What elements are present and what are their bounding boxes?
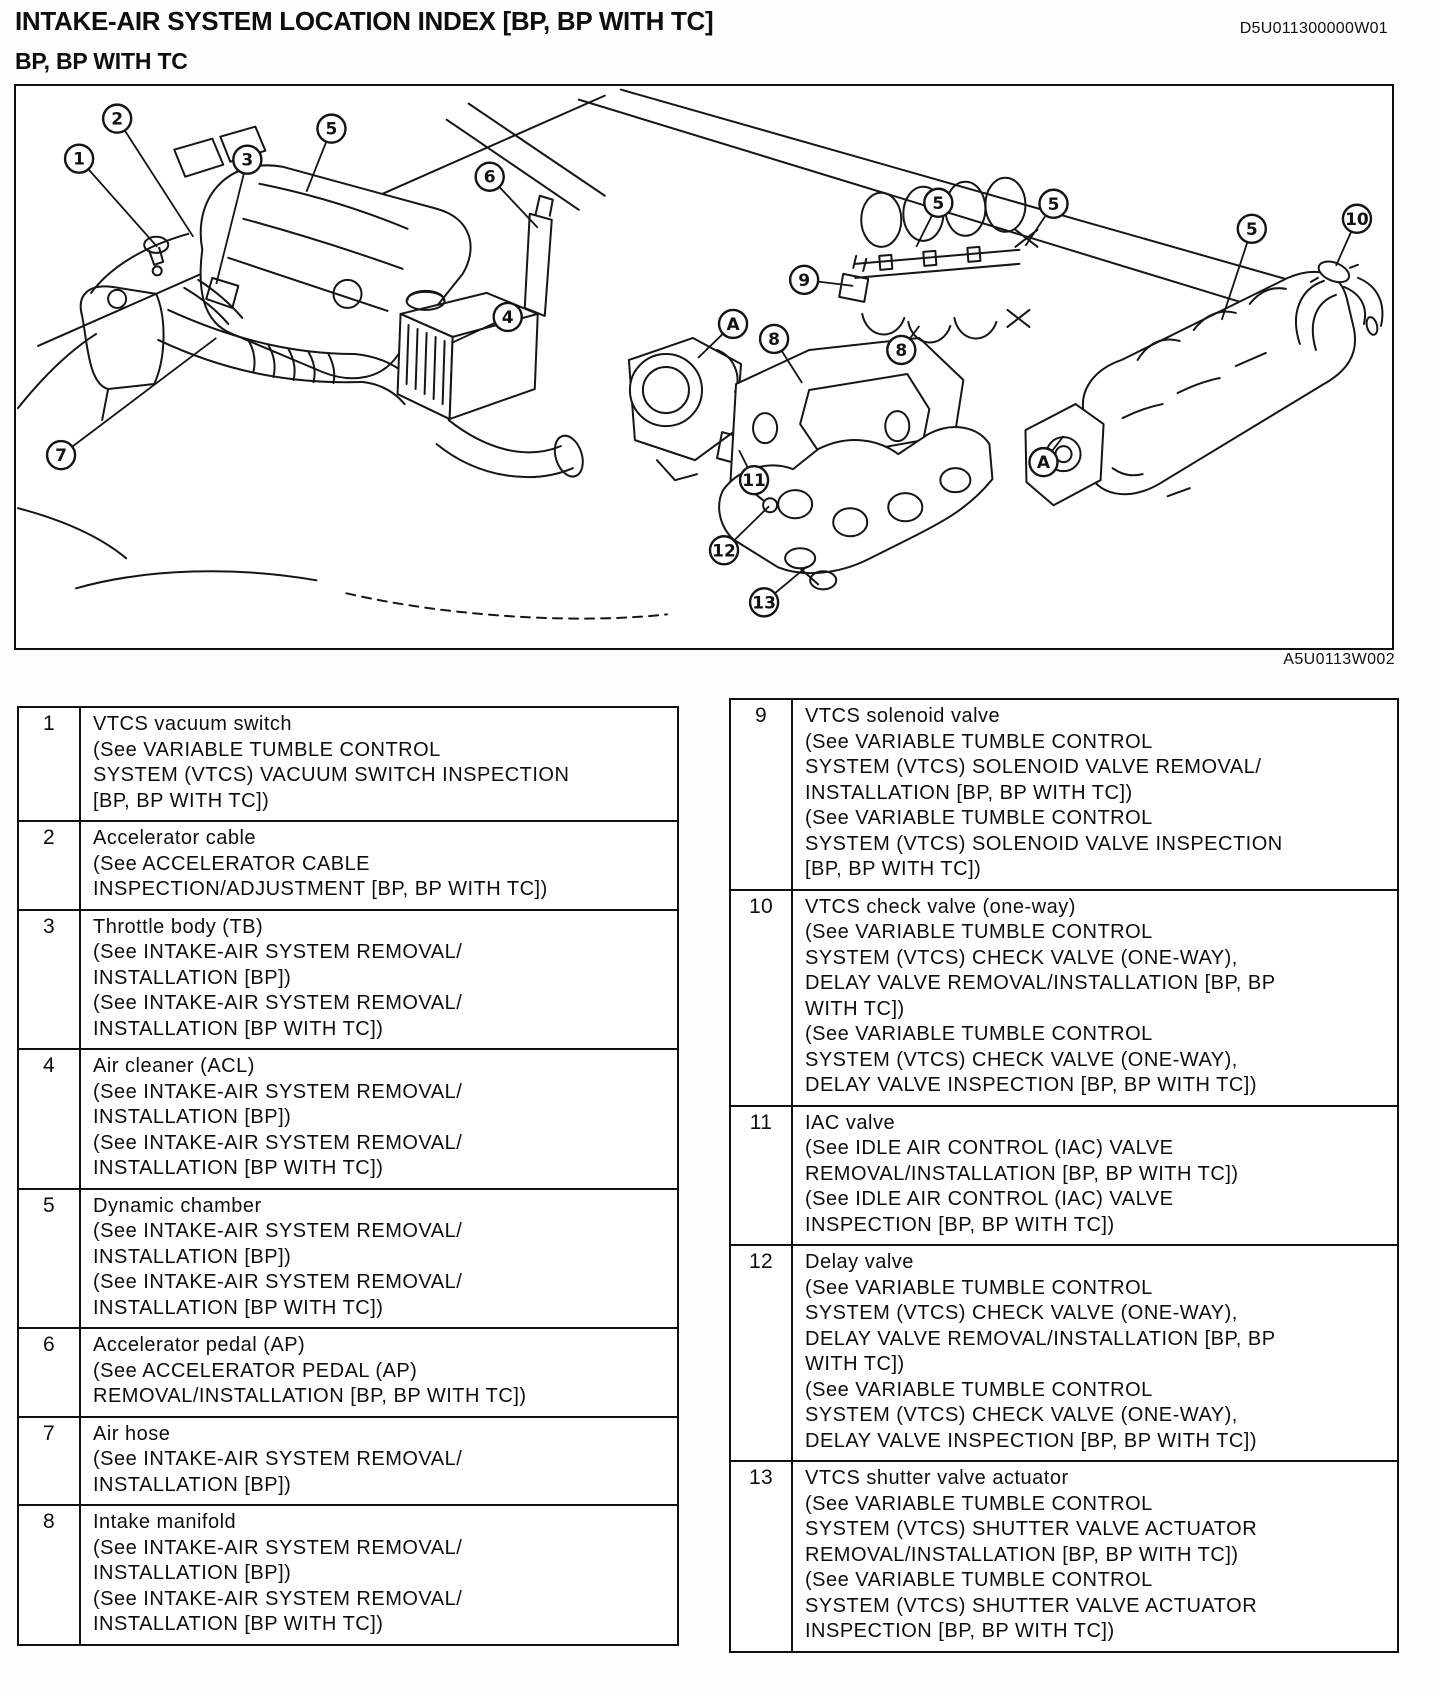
table-row-item-9: 9VTCS solenoid valve(See VARIABLE TUMBLE… [731, 700, 1397, 889]
item-number: 4 [19, 1050, 81, 1188]
svg-text:3: 3 [241, 151, 253, 171]
svg-text:A: A [1037, 453, 1051, 473]
table-row-item-1: 1VTCS vacuum switch(See VARIABLE TUMBLE … [19, 708, 677, 820]
svg-text:4: 4 [502, 308, 514, 328]
table-row-item-7: 7Air hose(See INTAKE-AIR SYSTEM REMOVAL/… [19, 1416, 677, 1505]
table-row-item-11: 11IAC valve(See IDLE AIR CONTROL (IAC) V… [731, 1105, 1397, 1245]
svg-text:7: 7 [55, 446, 67, 466]
item-number: 7 [19, 1418, 81, 1505]
item-description: VTCS solenoid valve(See VARIABLE TUMBLE … [793, 700, 1397, 889]
callout-6: 6 [476, 163, 538, 228]
table-row-item-5: 5Dynamic chamber(See INTAKE-AIR SYSTEM R… [19, 1188, 677, 1328]
doc-code: D5U011300000W01 [1148, 20, 1388, 38]
callout-A1: A [698, 310, 747, 358]
svg-text:5: 5 [1246, 220, 1258, 240]
svg-text:2: 2 [111, 110, 123, 130]
page-title: INTAKE-AIR SYSTEM LOCATION INDEX [BP, BP… [15, 6, 713, 37]
table-row-item-13: 13VTCS shutter valve actuator(See VARIAB… [731, 1460, 1397, 1651]
callout-7: 7 [47, 338, 216, 469]
table-row-item-10: 10VTCS check valve (one-way)(See VARIABL… [731, 889, 1397, 1105]
item-description: Accelerator cable(See ACCELERATOR CABLEI… [81, 822, 677, 909]
item-description: VTCS shutter valve actuator(See VARIABLE… [793, 1462, 1397, 1651]
item-description: VTCS check valve (one-way)(See VARIABLE … [793, 891, 1397, 1105]
callout-9: 9 [790, 266, 853, 294]
intake-air-diagram: 1235647A89585510111213A [14, 84, 1394, 650]
item-description: Dynamic chamber(See INTAKE-AIR SYSTEM RE… [81, 1190, 677, 1328]
item-description: Intake manifold(See INTAKE-AIR SYSTEM RE… [81, 1506, 677, 1644]
svg-text:5: 5 [326, 120, 338, 140]
item-number: 2 [19, 822, 81, 909]
page-subtitle: BP, BP WITH TC [15, 48, 188, 75]
engine-diagram-sketch [18, 90, 1382, 619]
item-number: 13 [731, 1462, 793, 1651]
location-index-tables: 1VTCS vacuum switch(See VARIABLE TUMBLE … [17, 706, 1399, 1653]
item-description: Air cleaner (ACL)(See INTAKE-AIR SYSTEM … [81, 1050, 677, 1188]
svg-text:10: 10 [1345, 210, 1369, 230]
callout-2: 2 [103, 105, 193, 237]
svg-text:8: 8 [768, 330, 780, 350]
item-number: 3 [19, 911, 81, 1049]
table-row-item-6: 6Accelerator pedal (AP)(See ACCELERATOR … [19, 1327, 677, 1416]
callout-10: 10 [1336, 205, 1371, 266]
svg-text:A: A [726, 315, 740, 335]
item-number: 1 [19, 708, 81, 820]
engine-diagram-svg: 1235647A89585510111213A [16, 86, 1392, 648]
item-description: Air hose(See INTAKE-AIR SYSTEM REMOVAL/I… [81, 1418, 677, 1505]
item-number: 8 [19, 1506, 81, 1644]
item-number: 10 [731, 891, 793, 1105]
svg-text:11: 11 [742, 471, 766, 491]
table-row-item-3: 3Throttle body (TB)(See INTAKE-AIR SYSTE… [19, 909, 677, 1049]
table-row-item-12: 12Delay valve(See VARIABLE TUMBLE CONTRO… [731, 1244, 1397, 1460]
index-table-left: 1VTCS vacuum switch(See VARIABLE TUMBLE … [17, 706, 679, 1646]
svg-text:6: 6 [484, 168, 496, 188]
item-description: Delay valve(See VARIABLE TUMBLE CONTROLS… [793, 1246, 1397, 1460]
svg-text:1: 1 [73, 150, 85, 170]
item-description: Accelerator pedal (AP)(See ACCELERATOR P… [81, 1329, 677, 1416]
callout-5c: 5 [1025, 190, 1067, 246]
svg-text:8: 8 [895, 341, 907, 361]
figure-code: A5U0113W002 [1105, 651, 1395, 669]
item-description: Throttle body (TB)(See INTAKE-AIR SYSTEM… [81, 911, 677, 1049]
svg-text:13: 13 [752, 593, 776, 613]
item-description: VTCS vacuum switch(See VARIABLE TUMBLE C… [81, 708, 677, 820]
item-number: 9 [731, 700, 793, 889]
table-row-item-2: 2Accelerator cable(See ACCELERATOR CABLE… [19, 820, 677, 909]
item-number: 5 [19, 1190, 81, 1328]
svg-text:12: 12 [712, 541, 736, 561]
item-number: 6 [19, 1329, 81, 1416]
table-row-item-4: 4Air cleaner (ACL)(See INTAKE-AIR SYSTEM… [19, 1048, 677, 1188]
svg-text:5: 5 [932, 194, 944, 214]
item-description: IAC valve(See IDLE AIR CONTROL (IAC) VAL… [793, 1107, 1397, 1245]
item-number: 11 [731, 1107, 793, 1245]
item-number: 12 [731, 1246, 793, 1460]
manual-page: INTAKE-AIR SYSTEM LOCATION INDEX [BP, BP… [0, 0, 1440, 1696]
callout-13: 13 [750, 566, 807, 616]
table-row-item-8: 8Intake manifold(See INTAKE-AIR SYSTEM R… [19, 1504, 677, 1644]
index-table-right: 9VTCS solenoid valve(See VARIABLE TUMBLE… [729, 698, 1399, 1653]
svg-text:5: 5 [1048, 195, 1060, 215]
svg-text:9: 9 [798, 271, 810, 291]
